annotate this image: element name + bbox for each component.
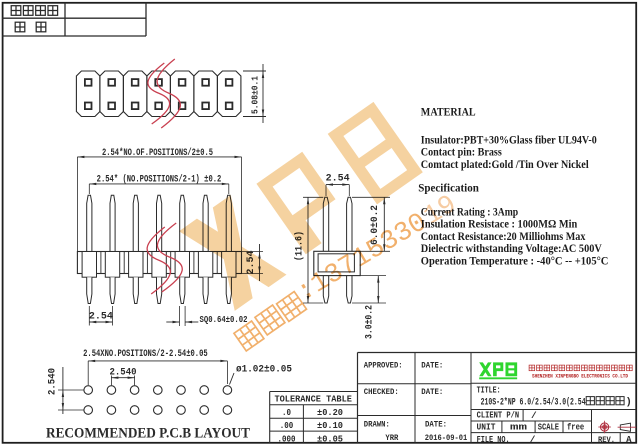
svg-text:.00: .00 (280, 420, 294, 431)
svg-text:2.54: 2.54 (89, 312, 113, 323)
svg-text:TITLE:: TITLE: (477, 385, 501, 395)
svg-text:±0.20: ±0.20 (317, 407, 343, 418)
svg-text:TOLERANCE TABLE: TOLERANCE TABLE (274, 394, 352, 404)
svg-text:UNIT: UNIT (477, 423, 497, 433)
svg-text:REV.: REV. (598, 436, 615, 445)
svg-text:Contact pin: Brass: Contact pin: Brass (421, 147, 503, 159)
svg-text:2016-09-01: 2016-09-01 (425, 433, 468, 443)
svg-text:A: A (626, 435, 632, 445)
svg-text:5.08±0.1: 5.08±0.1 (250, 76, 261, 114)
svg-text:CLIENT P/N: CLIENT P/N (477, 411, 519, 421)
svg-text:FILE NO.: FILE NO. (477, 435, 510, 445)
svg-text:SQ0.64±0.02: SQ0.64±0.02 (200, 315, 248, 325)
svg-text:RECOMMENDED P.C.B LAYOUT: RECOMMENDED P.C.B LAYOUT (46, 426, 250, 442)
svg-text:DATE:: DATE: (425, 419, 447, 429)
svg-text:Comtact plated:Gold /Tin Over: Comtact plated:Gold /Tin Over Nickel (421, 159, 589, 171)
svg-text:2.54XNO.POSITIONS/2-2.54±0.05: 2.54XNO.POSITIONS/2-2.54±0.05 (83, 348, 208, 360)
svg-text:/: / (531, 410, 537, 421)
svg-text:.000: .000 (278, 433, 296, 444)
svg-text:free: free (567, 422, 585, 433)
svg-text:MATERIAL: MATERIAL (421, 107, 476, 119)
svg-text:APPROVED:: APPROVED: (364, 360, 403, 370)
svg-text:2.54: 2.54 (326, 174, 350, 185)
svg-text:3.0±0.2: 3.0±0.2 (365, 305, 376, 339)
svg-text:mm: mm (510, 422, 527, 433)
svg-text:2.540: 2.540 (48, 368, 59, 395)
svg-text:): ) (626, 397, 632, 409)
svg-text:Operation Temperature : -40°C: Operation Temperature : -40°C -- +105°C (421, 256, 609, 268)
svg-text:.0: .0 (282, 407, 291, 418)
svg-text:210S-2*NP 6.0/2.54/3.0(2.54: 210S-2*NP 6.0/2.54/3.0(2.54 (481, 397, 586, 409)
svg-text:Specification: Specification (418, 182, 479, 194)
svg-text:DRAWN:: DRAWN: (364, 419, 390, 429)
svg-text:DATE:: DATE: (421, 387, 443, 397)
svg-text:Dielectric withstanding Volta: Dielectric withstanding Voltage:AC 500V (421, 243, 603, 255)
svg-text:DATE:: DATE: (421, 360, 443, 370)
svg-text:ø1.02±0.05: ø1.02±0.05 (236, 364, 292, 376)
svg-text:YRR: YRR (385, 433, 399, 443)
svg-text:±0.05: ±0.05 (317, 433, 343, 444)
svg-text:±0.10: ±0.10 (317, 420, 343, 431)
svg-text:CHECKED:: CHECKED: (364, 387, 399, 397)
svg-text:SCALE: SCALE (538, 423, 560, 433)
svg-text:SHENZHEN XINPENGBO ELECTRONICS: SHENZHEN XINPENGBO ELECTRONICS CO.LTD (532, 374, 628, 380)
svg-text:2.540: 2.540 (110, 367, 137, 378)
svg-text:Contact Resistance:20 Milliohm: Contact Resistance:20 Milliohms Max (421, 231, 586, 243)
svg-text:/: / (530, 434, 536, 445)
svg-text:Insulator:PBT+30%Glass fiber U: Insulator:PBT+30%Glass fiber UL94V-0 (421, 134, 597, 146)
